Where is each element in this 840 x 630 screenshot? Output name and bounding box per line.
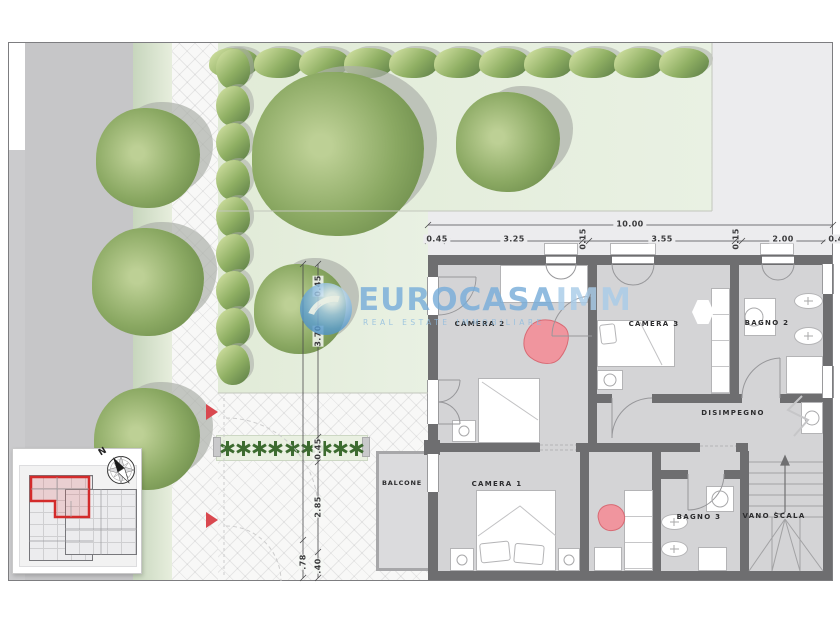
room-label-disimpegno: DISIMPEGNO — [701, 409, 765, 417]
dim-label: 3.25 — [500, 235, 527, 244]
outside-area-top-right — [712, 43, 833, 211]
nightstand — [597, 370, 623, 390]
dim-label: 0.45 — [313, 438, 324, 459]
hedge-bush — [216, 345, 250, 385]
shrub-icon — [274, 441, 277, 456]
tree-symbol — [254, 264, 346, 354]
wall-corridor-top — [597, 394, 612, 403]
shrub-row — [226, 440, 358, 456]
dim-label: .40 — [313, 558, 324, 573]
balcony-slab — [376, 451, 428, 571]
wall-bagno3-top — [661, 470, 688, 479]
nightstand — [558, 548, 580, 571]
room-label-camera2: CAMERA 2 — [455, 320, 506, 328]
wall-camera1-closet — [580, 451, 589, 571]
shrub-icon — [291, 441, 294, 456]
toilet — [794, 327, 823, 345]
hedge-bush — [216, 197, 250, 237]
window-opening — [546, 256, 576, 264]
dim-label: 0.45 — [423, 235, 450, 244]
window-sill — [610, 243, 656, 255]
room-label-bagno2: BAGNO 2 — [745, 319, 790, 327]
bench — [594, 547, 622, 571]
wardrobe — [711, 288, 730, 394]
hedge-bush — [216, 49, 250, 89]
wall-corridor-top — [652, 394, 742, 403]
highlighted-unit-outline — [31, 477, 89, 517]
hedge-bush — [216, 86, 250, 126]
dim-label: 0.4 — [825, 235, 840, 244]
sink — [706, 486, 734, 512]
red-arrow-marker — [206, 512, 218, 528]
bidet — [661, 541, 688, 557]
tree-symbol — [92, 228, 204, 336]
pillow — [479, 540, 511, 563]
shrub-icon — [307, 441, 310, 456]
hedge-bush — [569, 48, 619, 78]
red-arrow-marker — [206, 404, 218, 420]
hedge-bush — [216, 123, 250, 163]
sink — [744, 298, 776, 336]
hedge-bush — [524, 48, 574, 78]
shrub-icon — [339, 441, 342, 456]
shrub-icon — [258, 441, 261, 456]
window-opening — [612, 256, 654, 264]
shrub-icon — [355, 441, 358, 456]
hedge-bush — [216, 234, 250, 274]
hedge-bush — [216, 308, 250, 348]
window-opening — [762, 256, 794, 264]
planter-end-cap — [213, 437, 221, 457]
wall-camera1-top — [438, 443, 540, 452]
room-label-bagno3: BAGNO 3 — [677, 513, 722, 521]
window-opening — [822, 264, 834, 294]
dim-label-total: 10.00 — [613, 220, 646, 229]
hedge-column-left — [216, 52, 250, 388]
nightstand — [450, 548, 474, 571]
hedge-bush — [659, 48, 709, 78]
wall-balcony-stub — [424, 440, 440, 455]
balcony-door-opening — [427, 454, 439, 492]
hedge-bush — [614, 48, 664, 78]
dim-label: 0.15 — [732, 228, 741, 249]
shrub-icon — [226, 441, 229, 456]
pillow — [599, 323, 617, 345]
washbasin — [801, 402, 823, 434]
wall-closet-bagno3 — [652, 451, 661, 571]
wardrobe — [500, 265, 588, 303]
closet-shelves — [624, 490, 653, 571]
key-plan-panel: N — [12, 448, 142, 574]
door-opening — [427, 277, 439, 315]
wall-bagno3-stairs — [740, 451, 749, 571]
room-label-camera3: CAMERA 3 — [629, 320, 680, 328]
room-label-vano-scala: VANO SCALA — [742, 512, 805, 520]
tree-symbol — [96, 108, 200, 208]
hedge-bush — [479, 48, 529, 78]
window-sill — [544, 243, 578, 255]
room-label-balcone: BALCONE — [382, 479, 422, 487]
hedge-row-top — [214, 48, 714, 78]
tree-symbol — [456, 92, 560, 192]
dim-label: 3.70 — [313, 325, 324, 346]
window-opening — [427, 380, 439, 424]
wall-corridor-bottom — [588, 443, 700, 452]
dim-label: 0.15 — [579, 228, 588, 249]
wall-exterior-bottom — [428, 571, 833, 581]
key-plan-highlight-and-compass — [13, 449, 143, 575]
shower — [786, 356, 823, 394]
bed — [478, 378, 540, 443]
wall-exterior-right — [823, 255, 833, 581]
hedge-bush — [254, 48, 304, 78]
dim-label: 2.00 — [769, 235, 796, 244]
hedge-bush — [434, 48, 484, 78]
nightstand — [452, 420, 476, 442]
pillow — [513, 543, 545, 566]
hedge-bush — [216, 271, 250, 311]
floor-plan-drawing: 10.00 0.45 3.25 0.15 3.55 0.15 2.00 0.4 … — [0, 0, 840, 630]
window-sill — [760, 243, 794, 255]
dim-label: 3.55 — [648, 235, 675, 244]
wall-bagno3-top — [724, 470, 740, 479]
compass-rose — [107, 455, 135, 485]
hedge-bush — [389, 48, 439, 78]
room-label-camera1: CAMERA 1 — [472, 480, 523, 488]
dim-label: 2.85 — [313, 496, 324, 517]
wall-camera3-bagno2 — [730, 265, 739, 394]
bidet — [794, 293, 823, 309]
road-edge-strip — [9, 43, 25, 150]
window-opening — [822, 366, 834, 398]
dim-label: .78 — [298, 554, 309, 569]
tree-symbol — [252, 72, 424, 236]
wall-camera2-camera3 — [588, 265, 597, 443]
shrub-icon — [242, 441, 245, 456]
planter-end-cap — [362, 437, 370, 457]
dim-label: 0.45 — [313, 275, 324, 296]
shower — [698, 547, 727, 571]
hedge-bush — [216, 160, 250, 200]
